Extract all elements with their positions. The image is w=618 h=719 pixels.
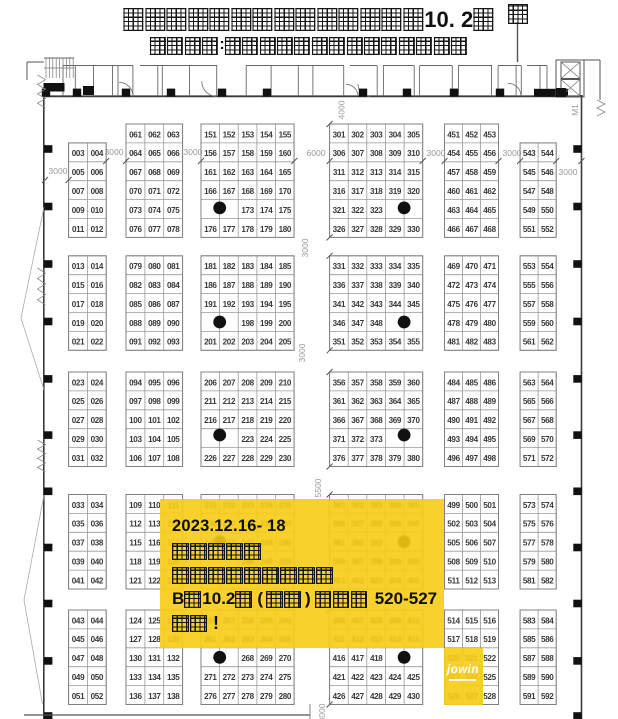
svg-text:557: 557: [523, 300, 536, 309]
svg-text:169: 169: [260, 187, 273, 196]
svg-text:105: 105: [167, 435, 180, 444]
svg-text:467: 467: [465, 225, 478, 234]
svg-text:158: 158: [241, 149, 254, 158]
svg-text:452: 452: [465, 130, 478, 139]
svg-text:226: 226: [204, 454, 217, 463]
svg-text:003: 003: [72, 149, 85, 158]
svg-text:376: 376: [333, 454, 346, 463]
svg-text:307: 307: [351, 149, 364, 158]
svg-text:559: 559: [523, 319, 536, 328]
svg-text:224: 224: [260, 435, 273, 444]
svg-text:372: 372: [351, 435, 364, 444]
svg-text:353: 353: [370, 338, 383, 347]
svg-text:556: 556: [541, 281, 554, 290]
svg-text:132: 132: [167, 654, 180, 663]
svg-text:072: 072: [167, 187, 180, 196]
svg-text:455: 455: [465, 149, 478, 158]
svg-text:418: 418: [370, 654, 383, 663]
svg-text:215: 215: [279, 397, 292, 406]
svg-text:220: 220: [279, 416, 292, 425]
svg-text:490: 490: [447, 416, 460, 425]
svg-text:104: 104: [148, 435, 161, 444]
svg-text:213: 213: [241, 397, 254, 406]
svg-text:513: 513: [483, 576, 496, 585]
svg-text:451: 451: [447, 130, 460, 139]
svg-text:359: 359: [389, 378, 402, 387]
svg-text:302: 302: [351, 130, 364, 139]
svg-text:106: 106: [129, 454, 142, 463]
svg-text:309: 309: [389, 149, 402, 158]
svg-text:308: 308: [370, 149, 383, 158]
svg-text:361: 361: [333, 397, 346, 406]
svg-text:328: 328: [370, 225, 383, 234]
svg-text:278: 278: [241, 692, 254, 701]
svg-text:485: 485: [465, 378, 478, 387]
svg-text:356: 356: [333, 378, 346, 387]
svg-text:457: 457: [447, 168, 460, 177]
svg-text:465: 465: [483, 206, 496, 215]
svg-text:229: 229: [260, 454, 273, 463]
svg-text:026: 026: [91, 397, 104, 406]
svg-text:369: 369: [389, 416, 402, 425]
svg-text:3000: 3000: [49, 166, 68, 176]
svg-text:191: 191: [204, 300, 217, 309]
svg-text:568: 568: [541, 416, 554, 425]
svg-text:456: 456: [483, 149, 496, 158]
svg-text:074: 074: [148, 206, 161, 215]
svg-text:037: 037: [72, 539, 85, 548]
svg-text:023: 023: [72, 378, 85, 387]
svg-text:107: 107: [148, 454, 161, 463]
svg-text:354: 354: [389, 338, 402, 347]
svg-text:588: 588: [541, 654, 554, 663]
svg-text:098: 098: [148, 397, 161, 406]
svg-text:330: 330: [407, 225, 420, 234]
svg-text:573: 573: [523, 501, 536, 510]
svg-text:073: 073: [129, 206, 142, 215]
svg-text:571: 571: [523, 454, 536, 463]
svg-text:208: 208: [241, 378, 254, 387]
svg-text:585: 585: [523, 635, 536, 644]
svg-text:503: 503: [465, 520, 478, 529]
svg-text:358: 358: [370, 378, 383, 387]
svg-text:4000: 4000: [337, 100, 347, 119]
svg-text:506: 506: [465, 539, 478, 548]
svg-text:030: 030: [91, 435, 104, 444]
svg-text:034: 034: [91, 501, 104, 510]
svg-text:371: 371: [333, 435, 346, 444]
svg-text:033: 033: [72, 501, 85, 510]
svg-text:590: 590: [541, 673, 554, 682]
svg-text:576: 576: [541, 520, 554, 529]
svg-text:127: 127: [129, 635, 142, 644]
svg-text:574: 574: [541, 501, 554, 510]
svg-text:130: 130: [129, 654, 142, 663]
svg-text:154: 154: [260, 130, 273, 139]
svg-text:016: 016: [91, 281, 104, 290]
svg-text:313: 313: [370, 168, 383, 177]
svg-text:519: 519: [483, 635, 496, 644]
svg-text:550: 550: [541, 206, 554, 215]
svg-text:5500: 5500: [313, 478, 323, 497]
svg-text:498: 498: [483, 454, 496, 463]
svg-text:017: 017: [72, 300, 85, 309]
svg-text:084: 084: [167, 281, 180, 290]
svg-text:038: 038: [91, 539, 104, 548]
svg-text:201: 201: [204, 338, 217, 347]
svg-text:482: 482: [465, 338, 478, 347]
svg-text:177: 177: [223, 225, 236, 234]
svg-text:584: 584: [541, 616, 554, 625]
svg-text:018: 018: [91, 300, 104, 309]
svg-text:041: 041: [72, 576, 85, 585]
svg-text:061: 061: [129, 130, 142, 139]
svg-text:379: 379: [389, 454, 402, 463]
svg-text:329: 329: [389, 225, 402, 234]
svg-text:134: 134: [148, 673, 161, 682]
svg-text:223: 223: [241, 435, 254, 444]
svg-text:203: 203: [241, 338, 254, 347]
svg-text:075: 075: [167, 206, 180, 215]
svg-text:326: 326: [333, 225, 346, 234]
svg-text:188: 188: [241, 281, 254, 290]
svg-text:416: 416: [333, 654, 346, 663]
svg-text:345: 345: [407, 300, 420, 309]
svg-text:062: 062: [148, 130, 161, 139]
svg-text:011: 011: [72, 225, 85, 234]
svg-text:210: 210: [279, 378, 292, 387]
svg-text:569: 569: [523, 435, 536, 444]
svg-text:096: 096: [167, 378, 180, 387]
svg-text:509: 509: [465, 558, 478, 567]
svg-text:320: 320: [407, 187, 420, 196]
svg-text:M1: M1: [570, 104, 580, 116]
svg-text:486: 486: [483, 378, 496, 387]
svg-text:207: 207: [223, 378, 236, 387]
svg-text:108: 108: [167, 454, 180, 463]
svg-text:312: 312: [351, 168, 364, 177]
svg-text:335: 335: [407, 262, 420, 271]
svg-text:339: 339: [389, 281, 402, 290]
svg-text:333: 333: [370, 262, 383, 271]
svg-text:522: 522: [483, 654, 496, 663]
svg-text:3000: 3000: [300, 238, 310, 257]
svg-text:546: 546: [541, 168, 554, 177]
svg-text:212: 212: [223, 397, 236, 406]
svg-text:589: 589: [523, 673, 536, 682]
svg-text:355: 355: [407, 338, 420, 347]
svg-text:342: 342: [351, 300, 364, 309]
svg-text:507: 507: [483, 539, 496, 548]
svg-text:570: 570: [541, 435, 554, 444]
svg-text:305: 305: [407, 130, 420, 139]
svg-text:206: 206: [204, 378, 217, 387]
svg-text:182: 182: [223, 262, 236, 271]
svg-text:019: 019: [72, 319, 85, 328]
svg-text:347: 347: [351, 319, 364, 328]
svg-text:501: 501: [483, 501, 496, 510]
svg-text:495: 495: [483, 435, 496, 444]
svg-text:170: 170: [279, 187, 292, 196]
svg-text:512: 512: [465, 576, 478, 585]
svg-text:109: 109: [129, 501, 142, 510]
svg-text:543: 543: [523, 149, 536, 158]
svg-text:544: 544: [541, 149, 554, 158]
svg-text:087: 087: [167, 300, 180, 309]
svg-text:174: 174: [260, 206, 273, 215]
svg-text:092: 092: [148, 338, 161, 347]
svg-text:572: 572: [541, 454, 554, 463]
svg-text:362: 362: [351, 397, 364, 406]
svg-text:214: 214: [260, 397, 273, 406]
svg-text:454: 454: [447, 149, 460, 158]
svg-text:525: 525: [483, 673, 496, 682]
svg-text:475: 475: [447, 300, 460, 309]
svg-text:137: 137: [148, 692, 161, 701]
svg-text:138: 138: [167, 692, 180, 701]
svg-text:497: 497: [465, 454, 478, 463]
svg-text:005: 005: [72, 168, 85, 177]
svg-text:133: 133: [129, 673, 142, 682]
svg-text:083: 083: [148, 281, 161, 290]
svg-text:180: 180: [279, 225, 292, 234]
svg-text:583: 583: [523, 616, 536, 625]
svg-text:100: 100: [129, 416, 142, 425]
svg-text:088: 088: [129, 319, 142, 328]
svg-text:048: 048: [91, 654, 104, 663]
svg-text:344: 344: [389, 300, 402, 309]
svg-text:029: 029: [72, 435, 85, 444]
svg-text:079: 079: [129, 262, 142, 271]
svg-text:472: 472: [447, 281, 460, 290]
svg-text:528: 528: [483, 692, 496, 701]
svg-text:216: 216: [204, 416, 217, 425]
svg-text:479: 479: [465, 319, 478, 328]
svg-text:021: 021: [72, 338, 85, 347]
svg-text:422: 422: [351, 673, 364, 682]
svg-text:348: 348: [370, 319, 383, 328]
svg-text:365: 365: [407, 397, 420, 406]
svg-text:164: 164: [260, 168, 273, 177]
svg-text:013: 013: [72, 262, 85, 271]
svg-text:476: 476: [465, 300, 478, 309]
svg-text:493: 493: [447, 435, 460, 444]
svg-text:3000: 3000: [503, 148, 522, 158]
svg-text:089: 089: [148, 319, 161, 328]
svg-text:043: 043: [72, 616, 85, 625]
svg-text:514: 514: [447, 616, 460, 625]
svg-text:319: 319: [389, 187, 402, 196]
svg-text:115: 115: [129, 539, 142, 548]
svg-text:453: 453: [483, 130, 496, 139]
svg-text:323: 323: [370, 206, 383, 215]
svg-text:219: 219: [260, 416, 273, 425]
svg-text:364: 364: [389, 397, 402, 406]
svg-text:553: 553: [523, 262, 536, 271]
svg-text:3000: 3000: [317, 703, 327, 719]
svg-text:367: 367: [351, 416, 364, 425]
svg-text:426: 426: [333, 692, 346, 701]
svg-text:363: 363: [370, 397, 383, 406]
svg-text:189: 189: [260, 281, 273, 290]
svg-text:004: 004: [91, 149, 104, 158]
svg-text:269: 269: [260, 654, 273, 663]
svg-text:200: 200: [279, 319, 292, 328]
svg-text:049: 049: [72, 673, 85, 682]
svg-text:352: 352: [351, 338, 364, 347]
svg-text:064: 064: [129, 149, 142, 158]
svg-text:579: 579: [523, 558, 536, 567]
svg-text:561: 561: [523, 338, 536, 347]
svg-text:554: 554: [541, 262, 554, 271]
svg-text:565: 565: [523, 397, 536, 406]
svg-text:166: 166: [204, 187, 217, 196]
svg-text:3000: 3000: [184, 147, 203, 157]
svg-text:194: 194: [260, 300, 273, 309]
svg-text:008: 008: [91, 187, 104, 196]
svg-text:306: 306: [333, 149, 346, 158]
svg-text:086: 086: [148, 300, 161, 309]
svg-text:558: 558: [541, 300, 554, 309]
svg-text:327: 327: [351, 225, 364, 234]
svg-text:097: 097: [129, 397, 142, 406]
svg-text:156: 156: [204, 149, 217, 158]
svg-text:311: 311: [333, 168, 346, 177]
svg-text:186: 186: [204, 281, 217, 290]
svg-text:102: 102: [167, 416, 180, 425]
svg-text:046: 046: [91, 635, 104, 644]
svg-text:209: 209: [260, 378, 273, 387]
svg-text:176: 176: [204, 225, 217, 234]
svg-text:555: 555: [523, 281, 536, 290]
svg-text:548: 548: [541, 187, 554, 196]
svg-text:462: 462: [483, 187, 496, 196]
svg-text:487: 487: [447, 397, 460, 406]
svg-text:035: 035: [72, 520, 85, 529]
svg-text:458: 458: [465, 168, 478, 177]
svg-text:492: 492: [483, 416, 496, 425]
svg-text:549: 549: [523, 206, 536, 215]
svg-text:562: 562: [541, 338, 554, 347]
svg-text:322: 322: [351, 206, 364, 215]
svg-text:483: 483: [483, 338, 496, 347]
svg-text:014: 014: [91, 262, 104, 271]
svg-text:423: 423: [370, 673, 383, 682]
svg-text:360: 360: [407, 378, 420, 387]
svg-text:466: 466: [447, 225, 460, 234]
svg-text:162: 162: [223, 168, 236, 177]
svg-text:591: 591: [523, 692, 536, 701]
svg-text:273: 273: [241, 673, 254, 682]
svg-text:159: 159: [260, 149, 273, 158]
svg-text:343: 343: [370, 300, 383, 309]
svg-text:560: 560: [541, 319, 554, 328]
svg-text:010: 010: [91, 206, 104, 215]
svg-text:065: 065: [148, 149, 161, 158]
svg-text:321: 321: [333, 206, 346, 215]
svg-text:178: 178: [241, 225, 254, 234]
svg-text:277: 277: [223, 692, 236, 701]
svg-text:502: 502: [447, 520, 460, 529]
svg-text:161: 161: [204, 168, 217, 177]
svg-text:020: 020: [91, 319, 104, 328]
svg-text:187: 187: [223, 281, 236, 290]
svg-text:095: 095: [148, 378, 161, 387]
svg-text:136: 136: [129, 692, 142, 701]
svg-text:511: 511: [447, 576, 460, 585]
svg-text:168: 168: [241, 187, 254, 196]
svg-text:508: 508: [447, 558, 460, 567]
svg-text:504: 504: [483, 520, 496, 529]
svg-text:280: 280: [279, 692, 292, 701]
svg-text:496: 496: [447, 454, 460, 463]
svg-text:421: 421: [333, 673, 346, 682]
svg-text:6000: 6000: [307, 148, 326, 158]
svg-text:193: 193: [241, 300, 254, 309]
svg-text:424: 424: [389, 673, 402, 682]
svg-text:582: 582: [541, 576, 554, 585]
svg-text:547: 547: [523, 187, 536, 196]
svg-text:217: 217: [223, 416, 236, 425]
svg-text:351: 351: [333, 338, 346, 347]
svg-text:478: 478: [447, 319, 460, 328]
svg-text:112: 112: [129, 520, 142, 529]
svg-text:477: 477: [483, 300, 496, 309]
svg-text:499: 499: [447, 501, 460, 510]
svg-text:429: 429: [389, 692, 402, 701]
svg-text:489: 489: [483, 397, 496, 406]
svg-text:417: 417: [351, 654, 364, 663]
svg-text:587: 587: [523, 654, 536, 663]
svg-text:463: 463: [447, 206, 460, 215]
svg-text:318: 318: [370, 187, 383, 196]
svg-text:551: 551: [523, 225, 536, 234]
svg-text:500: 500: [465, 501, 478, 510]
svg-text:276: 276: [204, 692, 217, 701]
svg-text:051: 051: [72, 692, 85, 701]
svg-text:080: 080: [148, 262, 161, 271]
svg-text:473: 473: [465, 281, 478, 290]
svg-text:067: 067: [129, 168, 142, 177]
svg-text:050: 050: [91, 673, 104, 682]
svg-text:052: 052: [91, 692, 104, 701]
svg-text:135: 135: [167, 673, 180, 682]
svg-text:515: 515: [465, 616, 478, 625]
svg-text:211: 211: [204, 397, 217, 406]
svg-text:024: 024: [91, 378, 104, 387]
svg-text:461: 461: [465, 187, 478, 196]
svg-text:491: 491: [465, 416, 478, 425]
svg-text:081: 081: [167, 262, 180, 271]
svg-text:577: 577: [523, 539, 536, 548]
svg-text:428: 428: [370, 692, 383, 701]
svg-text:022: 022: [91, 338, 104, 347]
svg-text:373: 373: [370, 435, 383, 444]
svg-text:093: 093: [167, 338, 180, 347]
svg-text:334: 334: [389, 262, 402, 271]
svg-text:157: 157: [223, 149, 236, 158]
svg-text:076: 076: [129, 225, 142, 234]
svg-text:031: 031: [72, 454, 85, 463]
svg-text:564: 564: [541, 378, 554, 387]
svg-text:103: 103: [129, 435, 142, 444]
svg-text:563: 563: [523, 378, 536, 387]
svg-text:3000: 3000: [105, 147, 124, 157]
svg-text:205: 205: [279, 338, 292, 347]
svg-text:430: 430: [407, 692, 420, 701]
svg-text:042: 042: [91, 576, 104, 585]
svg-text:202: 202: [223, 338, 236, 347]
